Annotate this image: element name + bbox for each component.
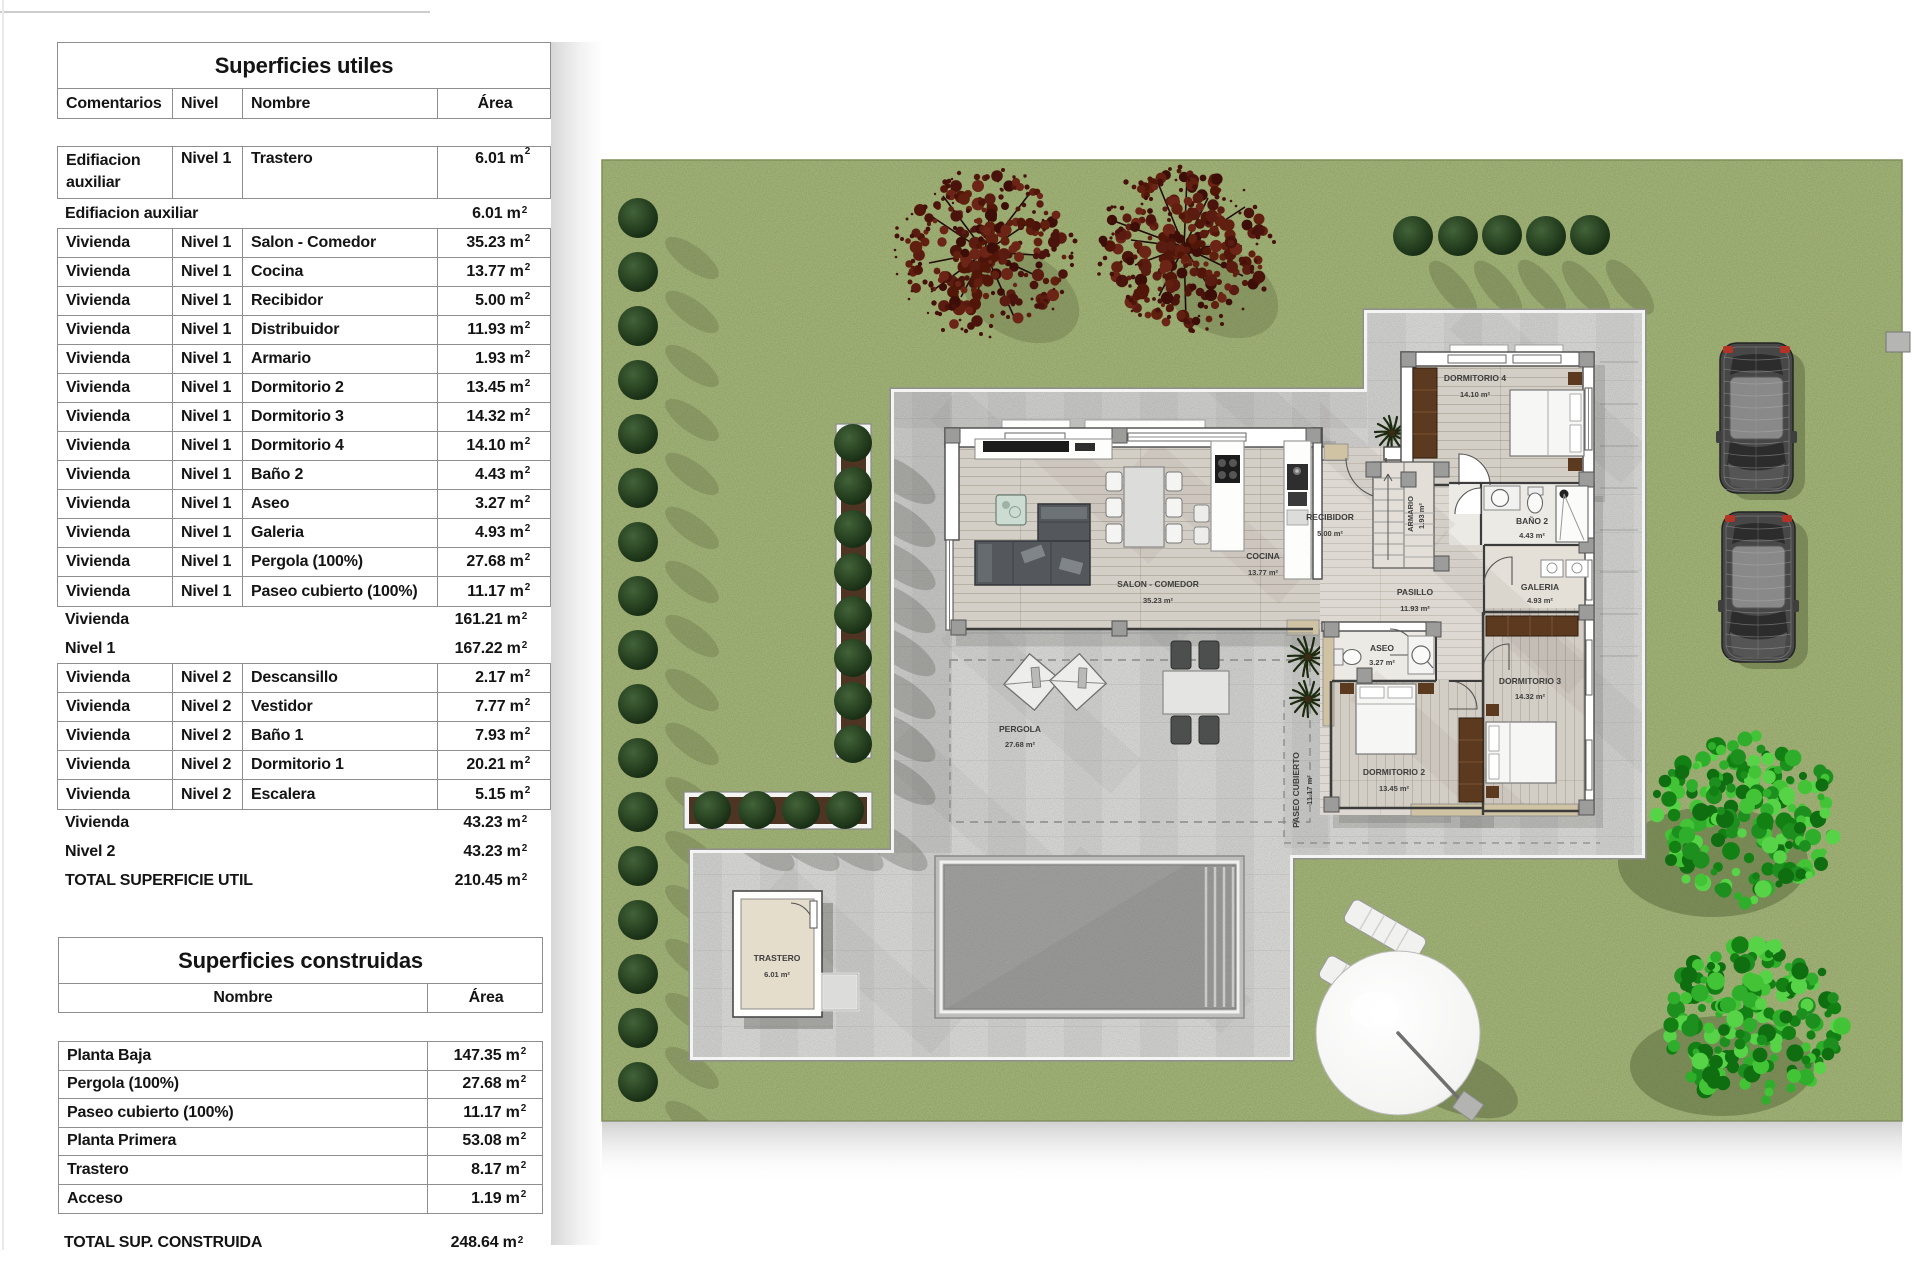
svg-text:4.93 m²: 4.93 m² [1527, 596, 1553, 605]
svg-text:TRASTERO: TRASTERO [754, 953, 801, 963]
svg-text:BAÑO 2: BAÑO 2 [1516, 516, 1548, 526]
svg-text:SALON - COMEDOR: SALON - COMEDOR [1117, 579, 1199, 589]
svg-text:GALERIA: GALERIA [1521, 582, 1559, 592]
svg-text:27.68 m²: 27.68 m² [1005, 740, 1036, 749]
svg-text:PASILLO: PASILLO [1397, 587, 1434, 597]
svg-text:13.77 m²: 13.77 m² [1248, 568, 1279, 577]
svg-text:ASEO: ASEO [1370, 643, 1394, 653]
svg-text:COCINA: COCINA [1246, 551, 1280, 561]
svg-text:1.93 m²: 1.93 m² [1417, 503, 1426, 529]
svg-text:ARMARIO: ARMARIO [1406, 496, 1415, 532]
svg-text:3.27 m²: 3.27 m² [1369, 658, 1395, 667]
svg-text:RECIBIDOR: RECIBIDOR [1306, 512, 1354, 522]
svg-text:4.43 m²: 4.43 m² [1519, 531, 1545, 540]
svg-text:14.32 m²: 14.32 m² [1515, 692, 1546, 701]
svg-text:5.00 m²: 5.00 m² [1317, 529, 1343, 538]
svg-text:PERGOLA: PERGOLA [999, 724, 1041, 734]
svg-text:DORMITORIO 2: DORMITORIO 2 [1363, 767, 1425, 777]
svg-text:14.10 m²: 14.10 m² [1460, 390, 1491, 399]
svg-text:6.01 m²: 6.01 m² [764, 970, 790, 979]
svg-text:35.23 m²: 35.23 m² [1143, 596, 1174, 605]
svg-text:DORMITORIO 4: DORMITORIO 4 [1444, 373, 1506, 383]
svg-text:13.45 m²: 13.45 m² [1379, 784, 1410, 793]
svg-text:DORMITORIO 3: DORMITORIO 3 [1499, 676, 1561, 686]
svg-text:PASEO CUBIERTO: PASEO CUBIERTO [1291, 752, 1301, 828]
svg-text:11.93 m²: 11.93 m² [1400, 604, 1430, 613]
svg-text:11.17 m²: 11.17 m² [1305, 775, 1314, 805]
